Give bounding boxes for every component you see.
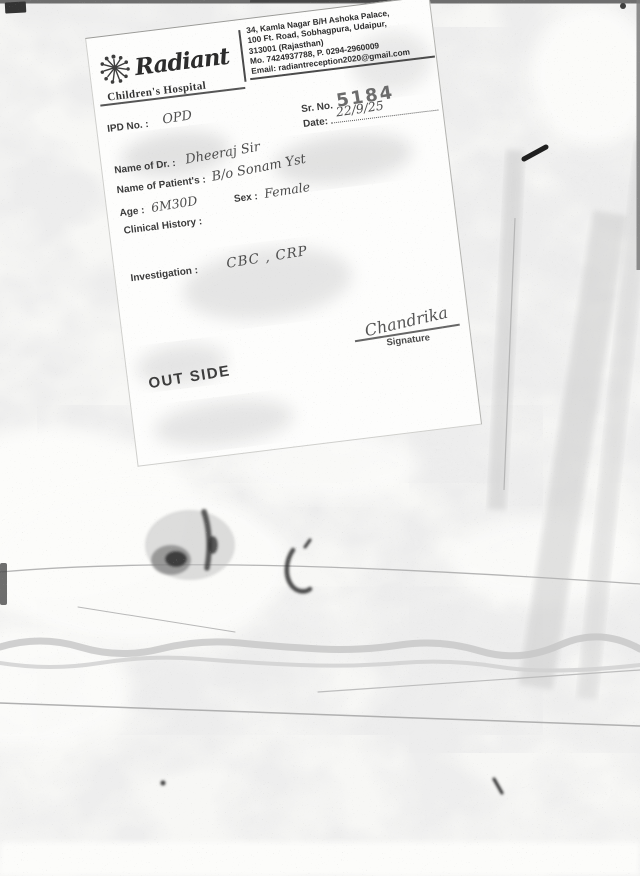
- scanned-document-page: Radiant Children's Hospital 34, Kamla Na…: [0, 0, 640, 876]
- ipd-value-handwritten: OPD: [162, 108, 194, 127]
- prescription-slip: Radiant Children's Hospital 34, Kamla Na…: [85, 0, 482, 467]
- radiant-starburst-icon: [96, 48, 135, 92]
- clinic-name: Radiant: [133, 42, 230, 80]
